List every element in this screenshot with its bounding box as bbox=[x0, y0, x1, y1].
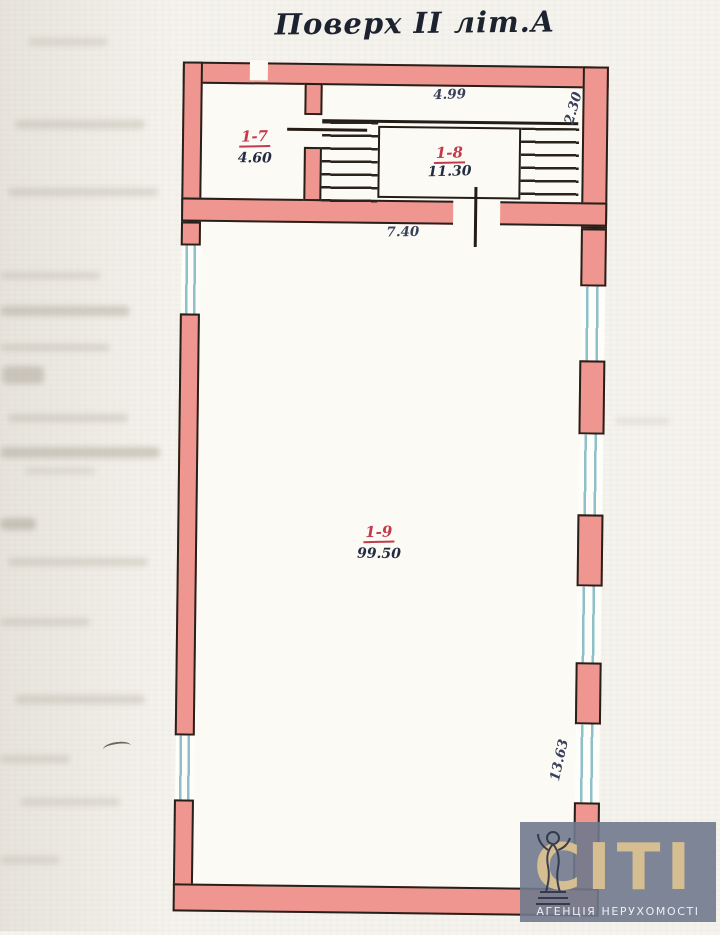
wall-left-seg3 bbox=[173, 799, 194, 885]
wall-right-pier3 bbox=[577, 514, 604, 586]
opening-top-wall bbox=[250, 60, 268, 80]
stair-flight-left bbox=[321, 121, 378, 203]
room-1-9-area: 99.50 bbox=[357, 546, 401, 563]
wall-right-pier1 bbox=[580, 228, 607, 286]
dimension-top-width: 4.99 bbox=[409, 86, 489, 104]
window-right-4 bbox=[575, 724, 600, 802]
room-1-9-label: 1-9 bbox=[363, 525, 395, 544]
stair-landing-box: 1-8 11.30 bbox=[377, 126, 521, 200]
statue-icon bbox=[526, 826, 578, 910]
wall-right-pier4 bbox=[575, 662, 602, 724]
wall-left-seg1 bbox=[181, 221, 201, 245]
window-left-1 bbox=[181, 245, 201, 313]
floor-plan: 1-8 11.30 1-7 4.60 1-9 99.50 4.99 2.30 7… bbox=[0, 0, 720, 935]
room-1-7-area: 4.60 bbox=[238, 150, 272, 166]
window-right-2 bbox=[578, 434, 603, 514]
stair-flight-right bbox=[520, 128, 579, 200]
agency-tagline: АГЕНЦІЯ НЕРУХОМОСТІ bbox=[520, 905, 716, 918]
room-1-7: 1-7 4.60 bbox=[212, 126, 298, 167]
window-right-3 bbox=[577, 586, 602, 662]
wall-divider-lower bbox=[303, 147, 322, 201]
room-1-9: 1-9 99.50 bbox=[329, 521, 429, 562]
window-right-1 bbox=[580, 286, 605, 360]
agency-watermark: СІТІ АГЕНЦІЯ НЕРУХОМОСТІ bbox=[520, 822, 716, 922]
dimension-entry-width: 7.40 bbox=[363, 223, 443, 241]
room-1-8-area: 11.30 bbox=[427, 163, 471, 180]
wall-divider-upper bbox=[304, 83, 322, 115]
window-left-2 bbox=[175, 735, 195, 799]
room-1-8-label: 1-8 bbox=[434, 145, 466, 164]
room-1-7-label: 1-7 bbox=[239, 129, 271, 148]
wall-right-pier2 bbox=[578, 360, 605, 434]
